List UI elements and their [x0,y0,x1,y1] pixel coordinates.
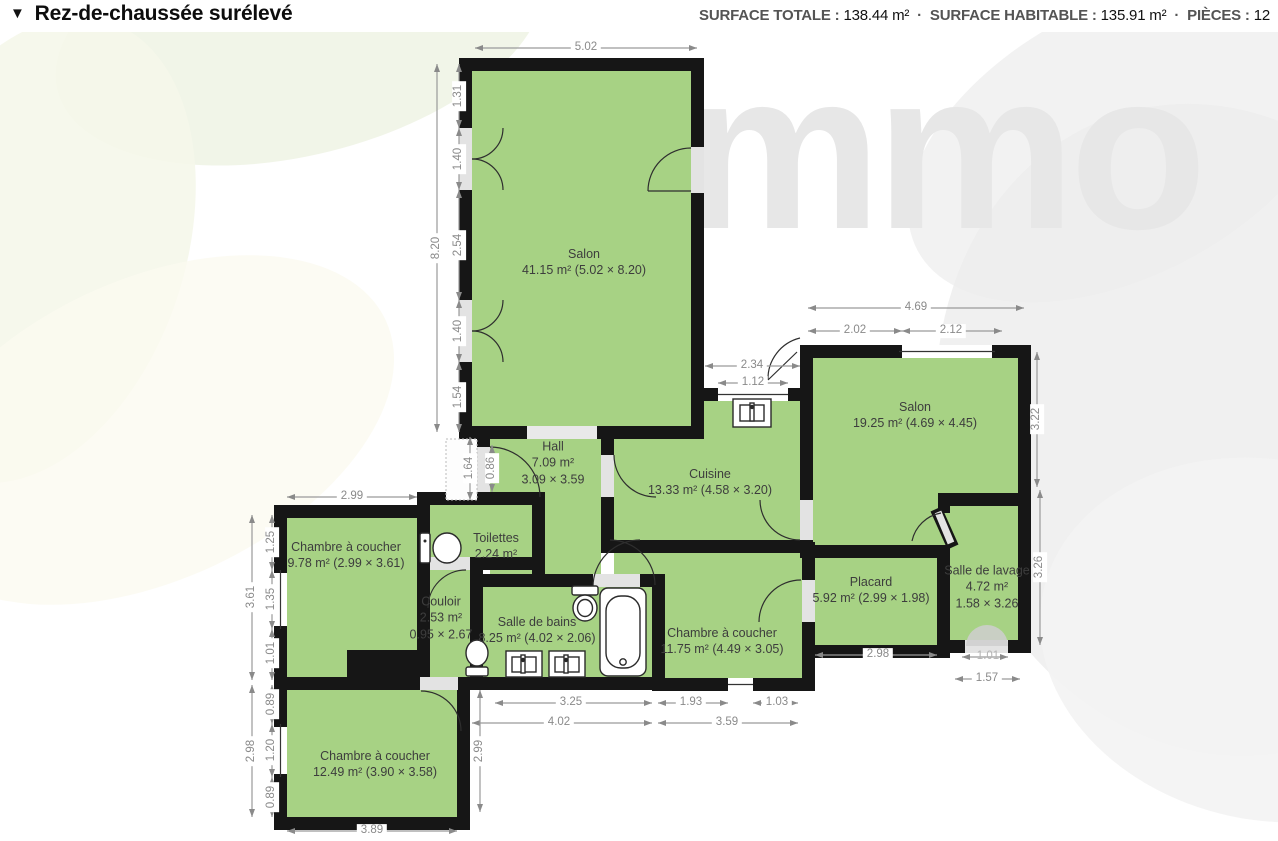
collapse-triangle-icon[interactable]: ▼ [10,5,25,22]
surface-totale-label: SURFACE TOTALE : [699,7,839,24]
floor-plan-canvas: immo [0,0,1278,841]
room-label-salon-grand: Salon 41.15 m² (5.02 × 8.20) [522,246,646,279]
toilet-icon [420,533,430,563]
dimension-label: 2.98 [863,648,893,662]
dimension-label: 1.40 [452,144,466,174]
room-name: Couloir [410,594,473,610]
room-name: Salon [853,399,977,415]
dimension-label: 2.12 [936,324,966,338]
room-area: 8.25 m² (4.02 × 2.06) [478,630,595,646]
room-area: 19.25 m² (4.69 × 4.45) [853,415,977,431]
dimension-label: 1.12 [738,376,768,390]
room-label-salle-de-lavage: Salle de lavage 4.72 m² 1.58 × 3.26 [944,563,1029,612]
dimension-label: 2.99 [473,736,487,766]
watermark-brand-text: immo [625,24,1201,276]
dimension-label: 3.26 [1033,552,1047,582]
room-size: 0.95 × 2.67 [410,626,473,642]
room-area: 9.78 m² (2.99 × 3.61) [287,555,404,571]
room-name: Salon [522,246,646,262]
room-label-couloir: Couloir 2.53 m² 0.95 × 2.67 [410,594,473,643]
room-label-placard: Placard 5.92 m² (2.99 × 1.98) [812,574,929,607]
floor-title-text: Rez-de-chaussée surélevé [35,2,293,25]
floor-plan-page: ▼Rez-de-chaussée surélevé SURFACE TOTALE… [0,0,1278,841]
surface-totale-value: 138.44 m² [843,7,909,24]
room-name: Hall [522,439,585,455]
dimension-label: 4.02 [544,716,574,730]
room-area: 7.09 m² [522,455,585,471]
room-area: 2.53 m² [410,610,473,626]
room-area: 13.33 m² (4.58 × 3.20) [648,482,772,498]
room-name: Toilettes [473,530,519,546]
dimension-label: 4.69 [901,301,931,315]
room-name: Salle de lavage [944,563,1029,579]
dimension-label: 1.01 [265,638,279,668]
dimension-label: 1.57 [972,672,1002,686]
pieces-label: PIÈCES : [1187,7,1250,24]
dimension-label: 0.89 [265,782,279,812]
dimension-label: 1.03 [762,696,792,710]
surface-habitable-label: SURFACE HABITABLE : [930,7,1097,24]
room-name: Chambre à coucher [313,748,437,764]
bathroom-toilet-icon [572,586,598,595]
room-area: 12.49 m² (3.90 × 3.58) [313,764,437,780]
room-name: Chambre à coucher [660,625,783,641]
stats-separator: · [1174,7,1179,24]
room-name: Chambre à coucher [287,539,404,555]
dimension-label: 1.25 [265,527,279,557]
dimension-label: 2.34 [737,359,767,373]
room-name: Placard [812,574,929,590]
dimension-label: 3.22 [1030,404,1044,434]
room-label-chambre-1: Chambre à coucher 9.78 m² (2.99 × 3.61) [287,539,404,572]
dimension-label: 3.61 [245,582,259,612]
dimension-label: 2.98 [245,736,259,766]
dimension-label: 2.02 [840,324,870,338]
dimension-label: 8.20 [430,233,444,263]
room-label-toilettes: Toilettes 2.24 m² [473,530,519,563]
room-label-salon-petit: Salon 19.25 m² (4.69 × 4.45) [853,399,977,432]
dimension-label: 1.54 [452,382,466,412]
dimension-label: 5.02 [571,41,601,55]
room-size: 1.58 × 3.26 [944,595,1029,611]
room-label-salle-de-bains: Salle de bains 8.25 m² (4.02 × 2.06) [478,614,595,647]
dimension-label: 1.35 [265,584,279,614]
dimension-label: 1.40 [452,316,466,346]
room-area: 5.92 m² (2.99 × 1.98) [812,590,929,606]
dimension-label: 3.89 [357,824,387,838]
dimension-label: 1.20 [265,735,279,765]
floor-title[interactable]: ▼Rez-de-chaussée surélevé [10,2,293,26]
pieces-value: 12 [1254,7,1270,24]
dimension-label: 2.99 [337,490,367,504]
dimension-label: 2.54 [452,230,466,260]
stats-separator: · [917,7,922,24]
dimension-label: 3.25 [556,696,586,710]
dimension-label: 0.86 [485,453,499,483]
dimension-label: 3.59 [712,716,742,730]
dimension-label: 1.64 [463,453,477,483]
dimension-label: 1.01 [973,650,1003,664]
surface-habitable-value: 135.91 m² [1101,7,1167,24]
dimension-label: 1.93 [676,696,706,710]
room-label-cuisine: Cuisine 13.33 m² (4.58 × 3.20) [648,466,772,499]
room-area: 4.72 m² [944,579,1029,595]
room-label-hall: Hall 7.09 m² 3.09 × 3.59 [522,439,585,488]
room-name: Cuisine [648,466,772,482]
room-area: 41.15 m² (5.02 × 8.20) [522,262,646,278]
room-area: 2.24 m² [473,546,519,562]
dimension-label: 1.31 [452,81,466,111]
room-name: Salle de bains [478,614,595,630]
room-size: 3.09 × 3.59 [522,471,585,487]
room-label-chambre-2: Chambre à coucher 11.75 m² (4.49 × 3.05) [660,625,783,658]
room-label-chambre-3: Chambre à coucher 12.49 m² (3.90 × 3.58) [313,748,437,781]
header-bar: ▼Rez-de-chaussée surélevé SURFACE TOTALE… [0,0,1278,32]
room-area: 11.75 m² (4.49 × 3.05) [660,641,783,657]
surface-stats: SURFACE TOTALE : 138.44 m² · SURFACE HAB… [699,7,1270,24]
dimension-label: 0.89 [265,689,279,719]
